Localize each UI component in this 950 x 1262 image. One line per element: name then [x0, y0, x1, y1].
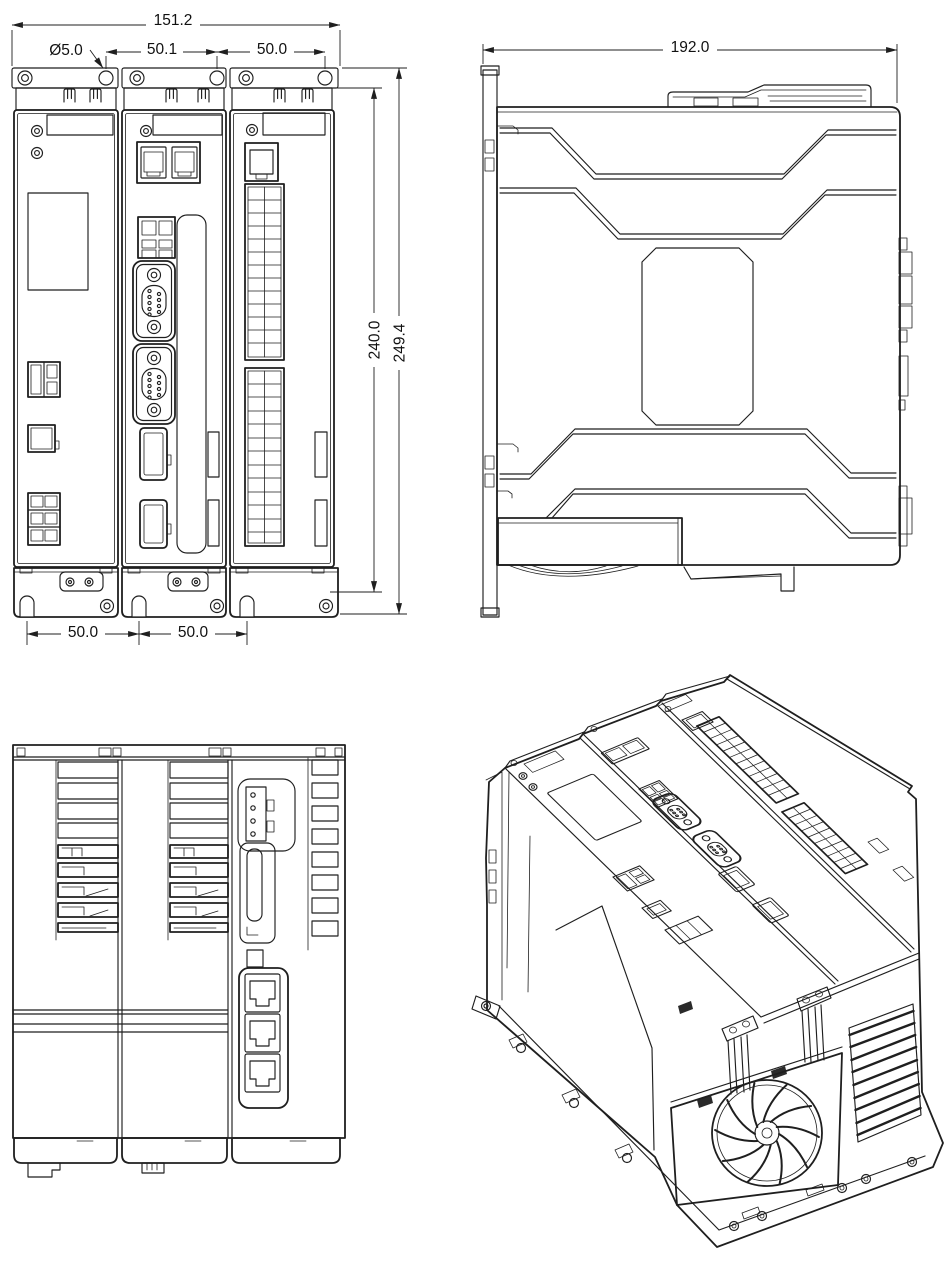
name-label-slot [153, 115, 222, 135]
front-module-3 [230, 110, 334, 567]
technical-drawing: 151.2 Ø5.0 50.1 50.0 240.0 [0, 0, 950, 1262]
side-din-plate [481, 66, 518, 617]
vent-slot [208, 500, 219, 546]
dim-text-top-pitch-b: 50.0 [257, 41, 288, 58]
mounting-bracket [60, 572, 208, 591]
name-label-slot [47, 115, 113, 135]
drawing-canvas: 151.2 Ø5.0 50.1 50.0 240.0 [0, 0, 950, 1262]
dim-top-pitch-b: 50.0 [217, 40, 325, 69]
dim-top-pitch-a: 50.1 [106, 40, 217, 69]
rear-module-dividers [118, 760, 232, 1138]
rear-top-strip [13, 748, 345, 760]
rear-view [13, 745, 345, 1177]
db9-connector-lower [133, 344, 175, 424]
din-notch [20, 596, 34, 617]
io-terminal-strip-lower [245, 368, 284, 546]
iso-terminal-strip-upper [697, 717, 798, 803]
side-view: 192.0 [481, 38, 912, 617]
side-connector-profiles [899, 238, 912, 546]
side-top-connector [668, 85, 871, 107]
side-vent-grooves [500, 128, 896, 538]
front-dimensions: 151.2 Ø5.0 50.1 50.0 240.0 [12, 11, 409, 645]
dim-text-body-height: 240.0 [367, 320, 384, 359]
isometric-view [472, 675, 943, 1247]
db9-connector-upper [133, 261, 175, 341]
usb-port [247, 950, 263, 967]
front-mounting-flange [12, 68, 338, 88]
dim-text-overall-width: 151.2 [154, 12, 193, 29]
power-terminal-4pin [246, 787, 274, 841]
vent-slot [315, 432, 327, 477]
side-nameplate [642, 248, 753, 425]
iso-vent-louvers [849, 1004, 921, 1142]
option-slot-cover [177, 215, 206, 553]
side-fan-housing [498, 518, 682, 576]
display-window [28, 193, 88, 290]
dim-bottom-pitch-b: 50.0 [139, 621, 247, 645]
rear-panel-seams [13, 1010, 228, 1032]
card-slot [247, 849, 262, 921]
dim-text-total-height: 249.4 [392, 323, 409, 362]
encoder-port-b [140, 500, 171, 548]
iso-module-gaps [580, 703, 914, 984]
side-bottom-bracket [684, 567, 794, 591]
dim-bottom-pitch-a: 50.0 [27, 621, 139, 645]
iso-side-face [507, 772, 654, 1150]
dim-text-bottom-pitch-b: 50.0 [178, 624, 209, 641]
ethernet-port [245, 143, 278, 181]
iso-fan-panel [671, 1047, 842, 1205]
din-notch [132, 596, 146, 617]
dim-text-bottom-pitch-a: 50.0 [68, 624, 99, 641]
front-base [14, 567, 338, 617]
rear-center-clip [142, 1163, 164, 1173]
rear-vents-module-3 [308, 758, 338, 950]
dim-body-height: 240.0 [330, 88, 384, 592]
iso-base-plate [499, 1006, 925, 1231]
power-connector-a [28, 362, 60, 397]
io-terminal-block [138, 217, 175, 258]
iso-terminal-strip-lower [782, 803, 867, 874]
iso-module-1-face [519, 751, 713, 944]
rear-foot [28, 1163, 60, 1177]
rear-vents-module-1 [56, 760, 118, 940]
status-led [32, 126, 43, 137]
iso-encoder-b [752, 897, 789, 923]
iso-front-side-edge [505, 768, 761, 1017]
dim-overall-depth: 192.0 [483, 38, 897, 103]
rear-base-strips [14, 1138, 340, 1177]
rear-vents-module-2 [168, 760, 228, 940]
side-body [497, 85, 912, 591]
iso-module-2-face [601, 738, 789, 924]
dim-text-hole-dia: Ø5.0 [49, 42, 83, 59]
ethernet-dual-port [137, 142, 200, 183]
front-top-plates [16, 88, 332, 110]
flange-hole [18, 71, 32, 85]
iso-db9-lower [690, 829, 744, 869]
iso-roof-edges [505, 676, 910, 789]
rear-module-3-panel [238, 779, 295, 1108]
din-notch [240, 596, 254, 617]
dim-text-overall-depth: 192.0 [671, 39, 710, 56]
front-module-1 [14, 110, 118, 567]
dim-hole-diameter: Ø5.0 [49, 42, 103, 68]
iso-ethernet-dual [601, 738, 649, 765]
front-module-2 [122, 110, 226, 567]
fan-icon [712, 1080, 822, 1186]
io-terminal-strip-upper [245, 184, 284, 360]
power-connector-b [28, 425, 59, 452]
ethernet-triple-port [239, 968, 288, 1108]
vent-slot [208, 432, 219, 477]
encoder-port-a [140, 428, 171, 480]
name-label-slot [263, 113, 325, 135]
power-connector-c [28, 493, 60, 545]
iso-lower-step-edge [761, 953, 919, 1023]
front-view: 151.2 Ø5.0 50.1 50.0 240.0 [12, 11, 409, 645]
vent-slot [315, 500, 327, 546]
dim-text-top-pitch-a: 50.1 [147, 41, 177, 58]
